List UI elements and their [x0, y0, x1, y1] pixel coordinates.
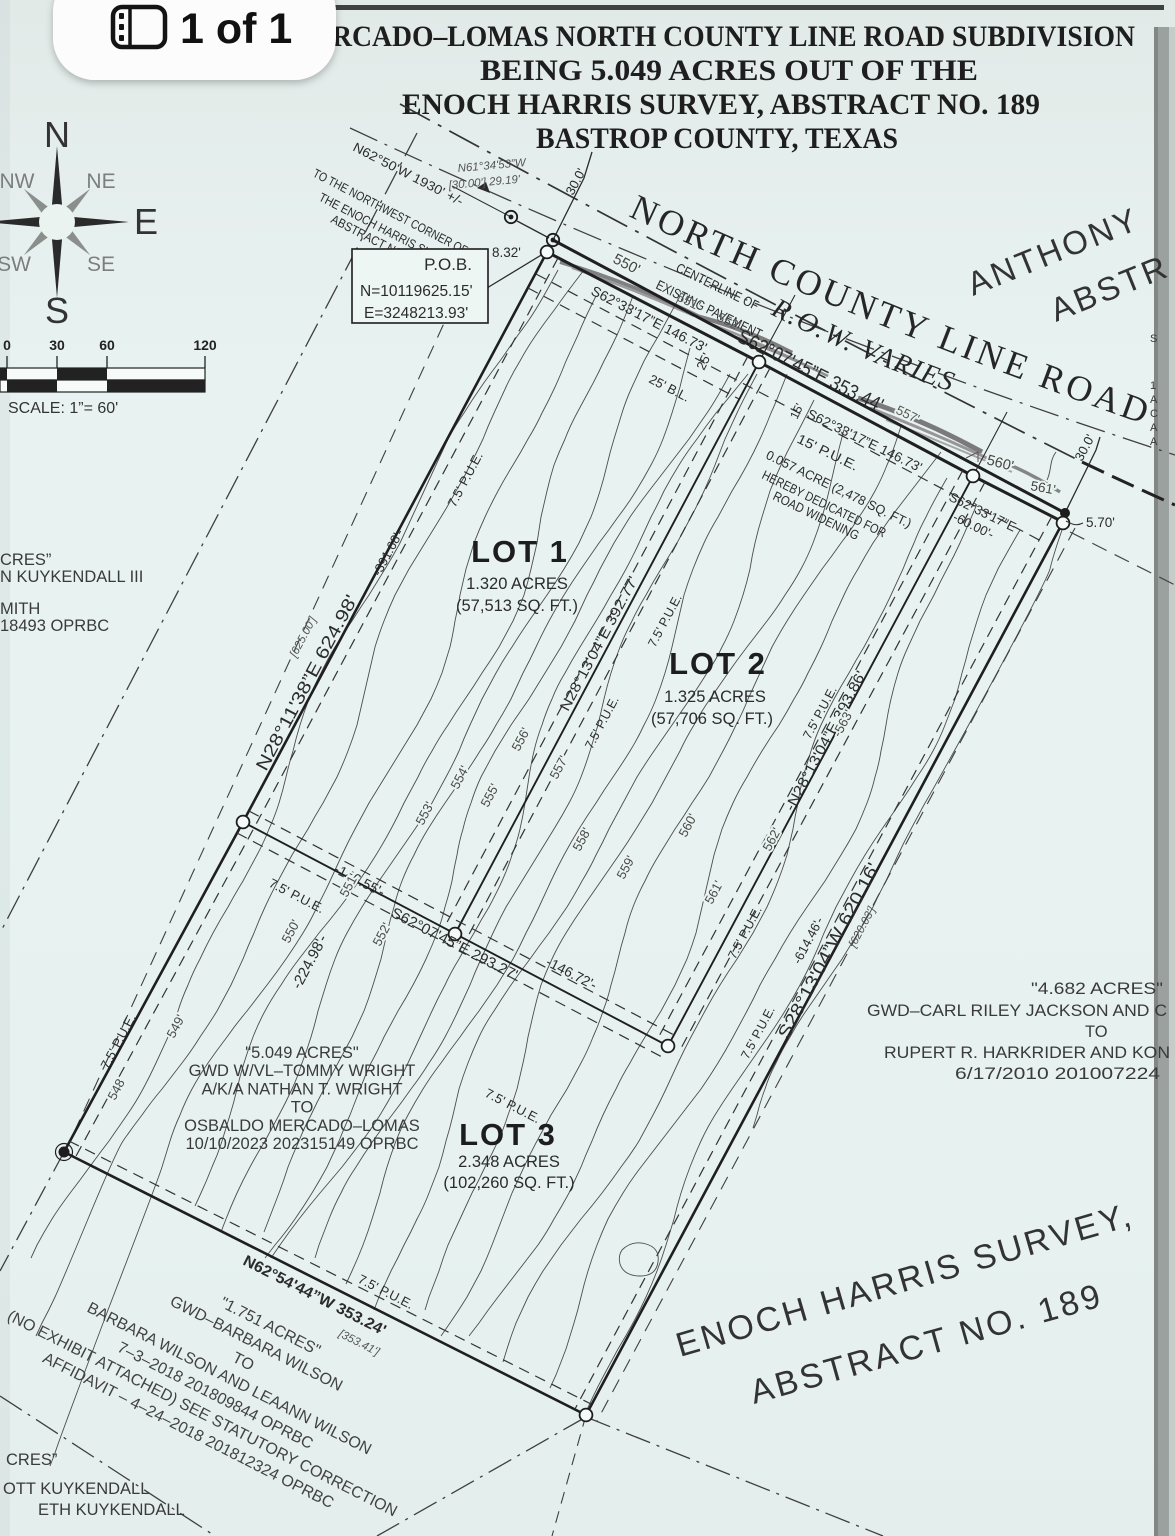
svg-text:120: 120 [193, 337, 217, 353]
svg-text:SCALE: 1”= 60': SCALE: 1”= 60' [8, 400, 118, 417]
svg-text:(57,513 SQ. FT.): (57,513 SQ. FT.) [456, 597, 578, 615]
svg-text:S: S [1150, 333, 1157, 345]
svg-text:60: 60 [99, 337, 115, 353]
svg-text:CRES”: CRES” [0, 551, 51, 569]
svg-text:N KUYKENDALL III: N KUYKENDALL III [0, 568, 143, 586]
svg-text:A: A [1150, 422, 1158, 434]
svg-text:"5.049 ACRES": "5.049 ACRES" [245, 1044, 359, 1062]
svg-text:OSBALDO MERCADO–LOMAS: OSBALDO MERCADO–LOMAS [184, 1117, 420, 1135]
svg-text:E: E [134, 201, 158, 242]
svg-text:A: A [1150, 436, 1158, 448]
svg-text:A/K/A NATHAN T. WRIGHT: A/K/A NATHAN T. WRIGHT [201, 1080, 402, 1098]
svg-text:1: 1 [1150, 380, 1156, 392]
svg-text:"4.682 ACRES": "4.682 ACRES" [1031, 980, 1163, 998]
svg-text:30: 30 [49, 337, 65, 353]
svg-text:LOT 2: LOT 2 [669, 646, 767, 681]
svg-text:N=10119625.15': N=10119625.15' [360, 283, 473, 300]
svg-text:GWD W/VL–TOMMY WRIGHT: GWD W/VL–TOMMY WRIGHT [189, 1062, 416, 1080]
svg-text:1 of 1: 1 of 1 [180, 5, 292, 53]
svg-text:TO: TO [1085, 1023, 1108, 1041]
svg-text:10/10/2023 202315149 OPRBC: 10/10/2023 202315149 OPRBC [185, 1135, 418, 1153]
svg-text:(102,260 SQ. FT.): (102,260 SQ. FT.) [443, 1174, 574, 1192]
svg-text:A: A [1150, 394, 1158, 406]
svg-text:0: 0 [3, 337, 11, 353]
svg-text:SW: SW [0, 253, 31, 276]
svg-text:MITH: MITH [0, 600, 40, 618]
svg-text:5.70': 5.70' [1086, 515, 1115, 530]
svg-text:TO: TO [291, 1099, 314, 1117]
svg-text:ETH KUYKENDALL: ETH KUYKENDALL [38, 1501, 185, 1519]
svg-text:RCADO–LOMAS NORTH COUNTY LI: RCADO–LOMAS NORTH COUNTY LINE ROAD SUBDI… [332, 20, 1135, 53]
svg-text:NE: NE [86, 170, 115, 193]
svg-text:P.O.B.: P.O.B. [424, 255, 472, 274]
svg-text:OTT KUYKENDALL: OTT KUYKENDALL [3, 1480, 149, 1498]
svg-text:18493 OPRBC: 18493 OPRBC [0, 617, 109, 635]
svg-text:E=3248213.93': E=3248213.93' [364, 305, 468, 322]
svg-text:ENOCH HARRIS SURVEY, ABSTRA: ENOCH HARRIS SURVEY, ABSTRACT NO. 189 [402, 88, 1040, 121]
svg-text:BEING 5.049 ACRES OUT OF: BEING 5.049 ACRES OUT OF THE [480, 54, 978, 87]
svg-text:SE: SE [87, 253, 115, 276]
svg-text:6/17/2010 201007224: 6/17/2010 201007224 [955, 1065, 1160, 1083]
svg-text:(57,706 SQ. FT.): (57,706 SQ. FT.) [651, 710, 773, 728]
svg-text:1.320 ACRES: 1.320 ACRES [466, 575, 568, 593]
svg-text:8.32': 8.32' [492, 245, 521, 260]
svg-text:LOT 3: LOT 3 [459, 1117, 557, 1152]
svg-text:CRES”: CRES” [6, 1451, 57, 1469]
svg-text:BASTROP COUNTY, TEXAS: BASTROP COUNTY, TEXAS [536, 122, 898, 155]
svg-text:S: S [45, 290, 69, 331]
svg-text:C: C [1150, 408, 1158, 420]
svg-text:1.325 ACRES: 1.325 ACRES [664, 688, 766, 706]
svg-text:2.348 ACRES: 2.348 ACRES [458, 1153, 560, 1171]
svg-text:NW: NW [0, 170, 35, 193]
svg-text:N: N [44, 114, 70, 155]
svg-text:LOT 1: LOT 1 [471, 534, 569, 569]
svg-text:RUPERT R. HARKRIDER AND KO: RUPERT R. HARKRIDER AND KON [884, 1044, 1170, 1062]
svg-text:GWD–CARL RILEY JACKSON AND: GWD–CARL RILEY JACKSON AND C [867, 1002, 1167, 1020]
